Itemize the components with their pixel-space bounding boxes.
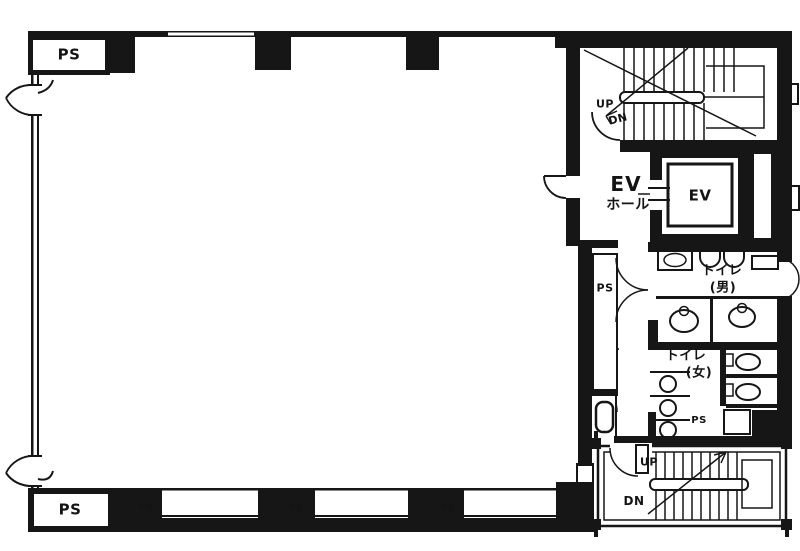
stair-steps-lower	[624, 103, 704, 140]
top-wall	[28, 31, 792, 75]
entry-door-top-left	[6, 80, 53, 115]
slop-sink	[596, 402, 613, 432]
corner-post	[590, 519, 601, 530]
stair-landing	[650, 479, 748, 490]
ev-hall-label-line2: ホール	[606, 198, 650, 212]
womens-toilet-label-line2: (女)	[686, 367, 712, 380]
column	[255, 37, 291, 70]
dn-label-bottom-stairs: DN	[623, 495, 644, 507]
stair-break-line	[648, 452, 726, 514]
stall-wall	[720, 350, 726, 406]
womens-toilet	[614, 350, 792, 446]
ev-hall-label-line1: EV	[610, 174, 641, 194]
shaft-block	[752, 410, 777, 436]
ps-label-womens-toilet: PS	[691, 416, 707, 426]
womens-toilet-label-line1: トイレ	[666, 350, 707, 363]
entry-door-bottom-left	[6, 456, 53, 486]
corner-column	[556, 482, 594, 532]
ps-label-bottom-column-2: PS	[289, 505, 303, 514]
corner-post	[590, 438, 601, 449]
ps-label-top-left: PS	[58, 48, 81, 63]
corner-post	[781, 438, 792, 449]
corner-post	[781, 519, 792, 530]
stall-partition	[726, 404, 777, 408]
stair-steps-lower	[656, 491, 737, 520]
elevator-hall	[544, 176, 618, 254]
stall-front-wall	[656, 296, 777, 299]
corridor-wall	[578, 244, 592, 466]
up-label-bottom-stairs: UP	[640, 457, 658, 468]
stall-partition	[710, 299, 713, 342]
stair-return	[742, 460, 772, 508]
mens-toilet	[648, 242, 799, 350]
ps-label-bottom-column-3: PS	[441, 505, 455, 514]
left-wall	[28, 73, 42, 492]
top-window	[168, 33, 254, 36]
ps-label-bottom-left: PS	[59, 503, 82, 518]
ps-label-bottom-column-1: PS	[139, 505, 153, 514]
elevator-shaft	[638, 148, 799, 244]
mens-toilet-label-line2: (男)	[710, 282, 736, 295]
exterior-door-opening	[777, 262, 792, 296]
up-label-top-stairs: UP	[596, 99, 614, 110]
bottom-wall	[28, 482, 594, 532]
bottom-staircase	[590, 431, 792, 537]
ev-car-label: EV	[689, 189, 712, 204]
stall-partition	[726, 374, 777, 378]
ps-label-corridor-shaft: PS	[597, 283, 614, 294]
elevator-door-opening	[650, 180, 664, 210]
door-arc	[544, 176, 566, 198]
sk-closet-wall	[592, 390, 618, 396]
wall-niche	[577, 464, 593, 484]
floor-plan-drawing	[0, 0, 800, 551]
mens-toilet-label-line1: トイレ	[702, 265, 743, 278]
floor-plan: PS PS PS PS PS PS PS UP DN UP DN EV ホール …	[0, 0, 800, 551]
column	[406, 37, 439, 70]
